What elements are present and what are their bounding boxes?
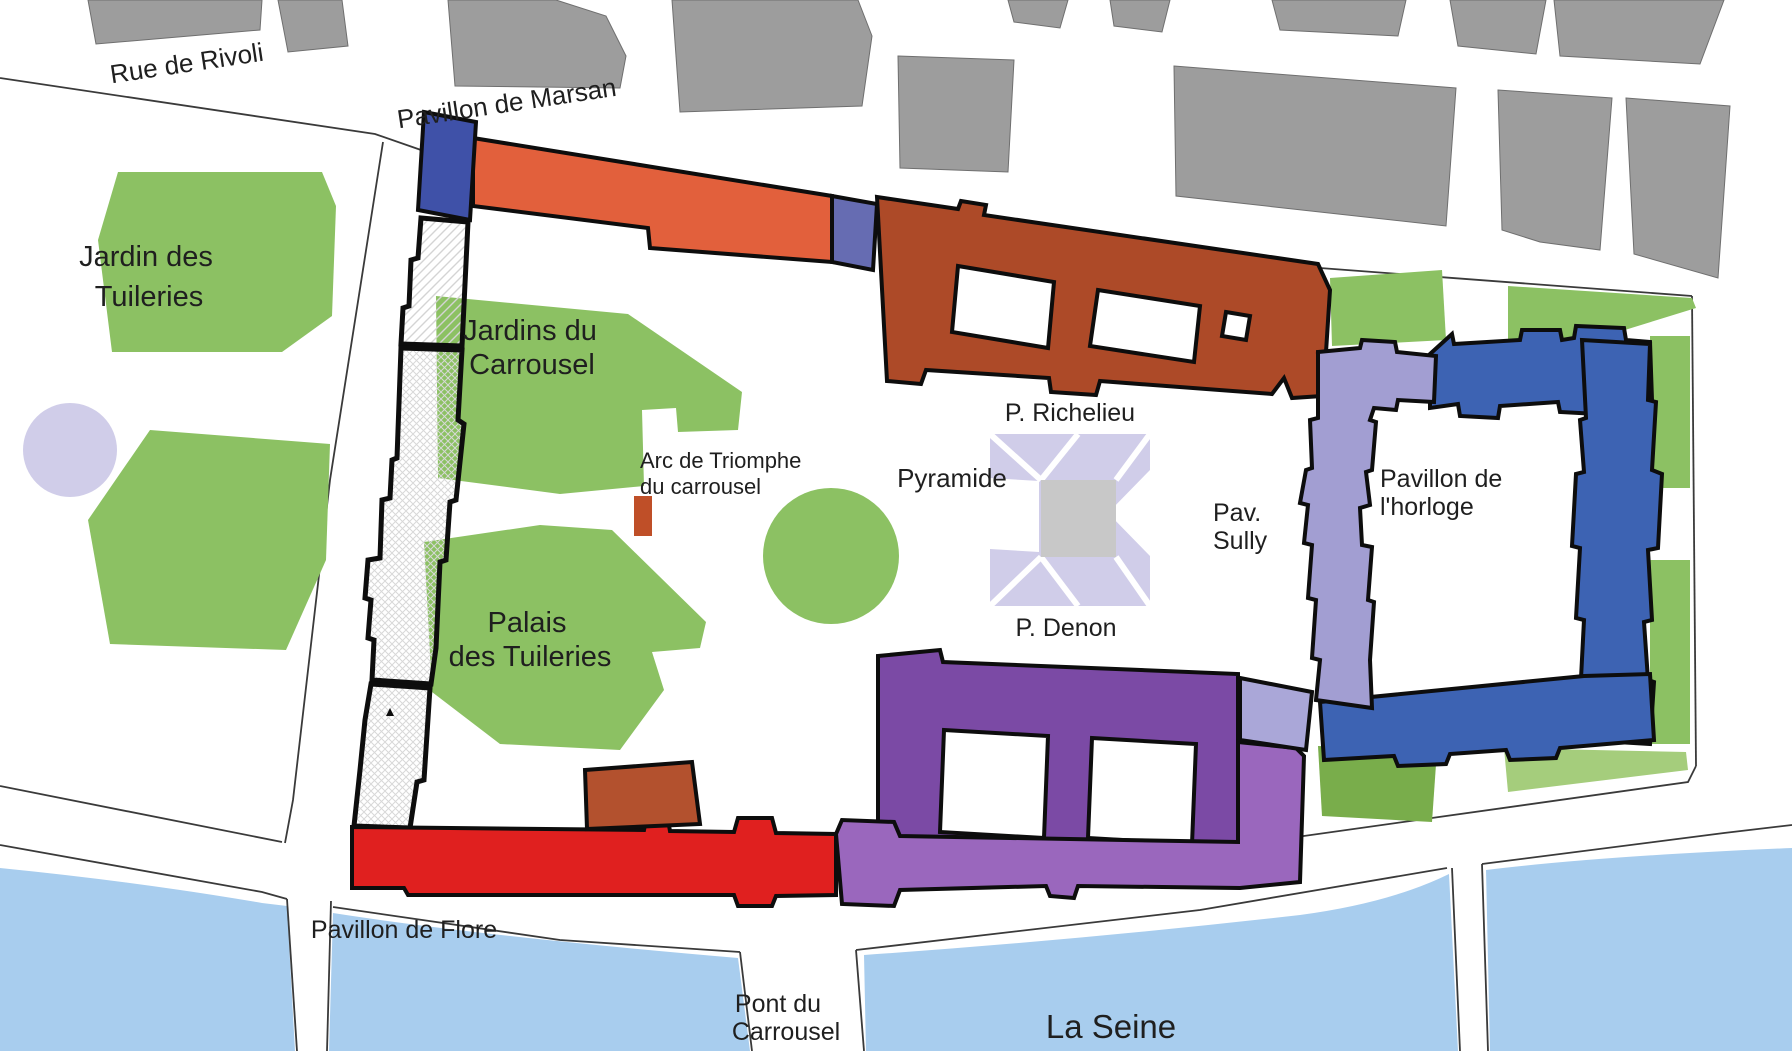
label-palais-tuileries-1: Palais: [488, 607, 567, 639]
footprint-segment-north: [401, 218, 468, 346]
label-arc-triomphe-1: Arc de Triomphe: [640, 448, 801, 473]
label-palais-tuileries-2: des Tuileries: [449, 641, 612, 673]
label-rue-de-rivoli: Rue de Rivoli: [108, 37, 265, 90]
city-block: [1110, 0, 1170, 32]
flore-wing: [352, 818, 836, 906]
tuileries-pond: [23, 403, 117, 497]
label-jardin-tuileries-1: Jardin des: [79, 241, 213, 273]
label-p-richelieu: P. Richelieu: [1005, 399, 1135, 427]
louvre-tuileries-map: Rue de Rivoli Pavillon de Marsan Jardin …: [0, 0, 1792, 1051]
footprint-segment-south: [354, 684, 430, 828]
rivoli-wing: [473, 138, 832, 262]
jardin-tuileries-south-green: [88, 430, 330, 650]
cc-southwest-connector: [1240, 678, 1312, 750]
pyramide-shape: [990, 434, 1150, 606]
brick-building: [585, 762, 700, 829]
palais-tuileries-footprint: [354, 218, 468, 828]
label-pav-sully-2: Sully: [1213, 527, 1268, 555]
city-block: [278, 0, 348, 52]
label-pavillon-horloge-2: l'horloge: [1380, 493, 1474, 521]
label-pont-carrousel-2: Carrousel: [732, 1018, 840, 1046]
cc-west-wing-horloge: [1300, 340, 1436, 708]
city-block: [1272, 0, 1406, 36]
city-block: [88, 0, 262, 44]
arc-de-triomphe-marker: [634, 496, 652, 536]
label-la-seine: La Seine: [1046, 1008, 1176, 1045]
label-pyramide: Pyramide: [897, 463, 1007, 493]
label-arc-triomphe-2: du carrousel: [640, 474, 761, 499]
river-segment: [0, 868, 295, 1051]
rue-de-rivoli-line: [0, 78, 421, 150]
pyramide-core: [1041, 480, 1116, 557]
label-jardins-carrousel-1: Jardins du: [463, 315, 597, 347]
cc-northwest-green: [1330, 270, 1446, 346]
city-block: [672, 0, 872, 112]
label-pav-sully-1: Pav.: [1213, 499, 1261, 527]
city-block: [898, 56, 1014, 172]
label-pont-carrousel-1: Pont du: [735, 990, 821, 1018]
quai-line-left-1: [0, 786, 282, 842]
city-block: [1174, 66, 1456, 226]
label-pavillon-flore: Pavillon de Flore: [311, 916, 497, 944]
carrousel-roundabout-green: [763, 488, 899, 624]
city-block: [1498, 90, 1612, 250]
label-jardins-carrousel-2: Carrousel: [469, 349, 595, 381]
richelieu-wing: [877, 197, 1330, 398]
city-block: [1626, 98, 1730, 278]
cc-east-green-2: [1650, 560, 1690, 744]
city-block: [1450, 0, 1546, 54]
pont-carrousel-edge: [856, 950, 864, 1051]
label-p-denon: P. Denon: [1015, 614, 1116, 642]
label-pavillon-horloge-1: Pavillon de: [1380, 465, 1502, 493]
east-street-line: [1692, 296, 1696, 766]
label-jardin-tuileries-2: Tuileries: [95, 281, 204, 313]
pavillon-rohan-block: [832, 196, 877, 270]
city-block: [1554, 0, 1724, 64]
river-segment: [1486, 848, 1792, 1051]
city-block: [1008, 0, 1068, 28]
